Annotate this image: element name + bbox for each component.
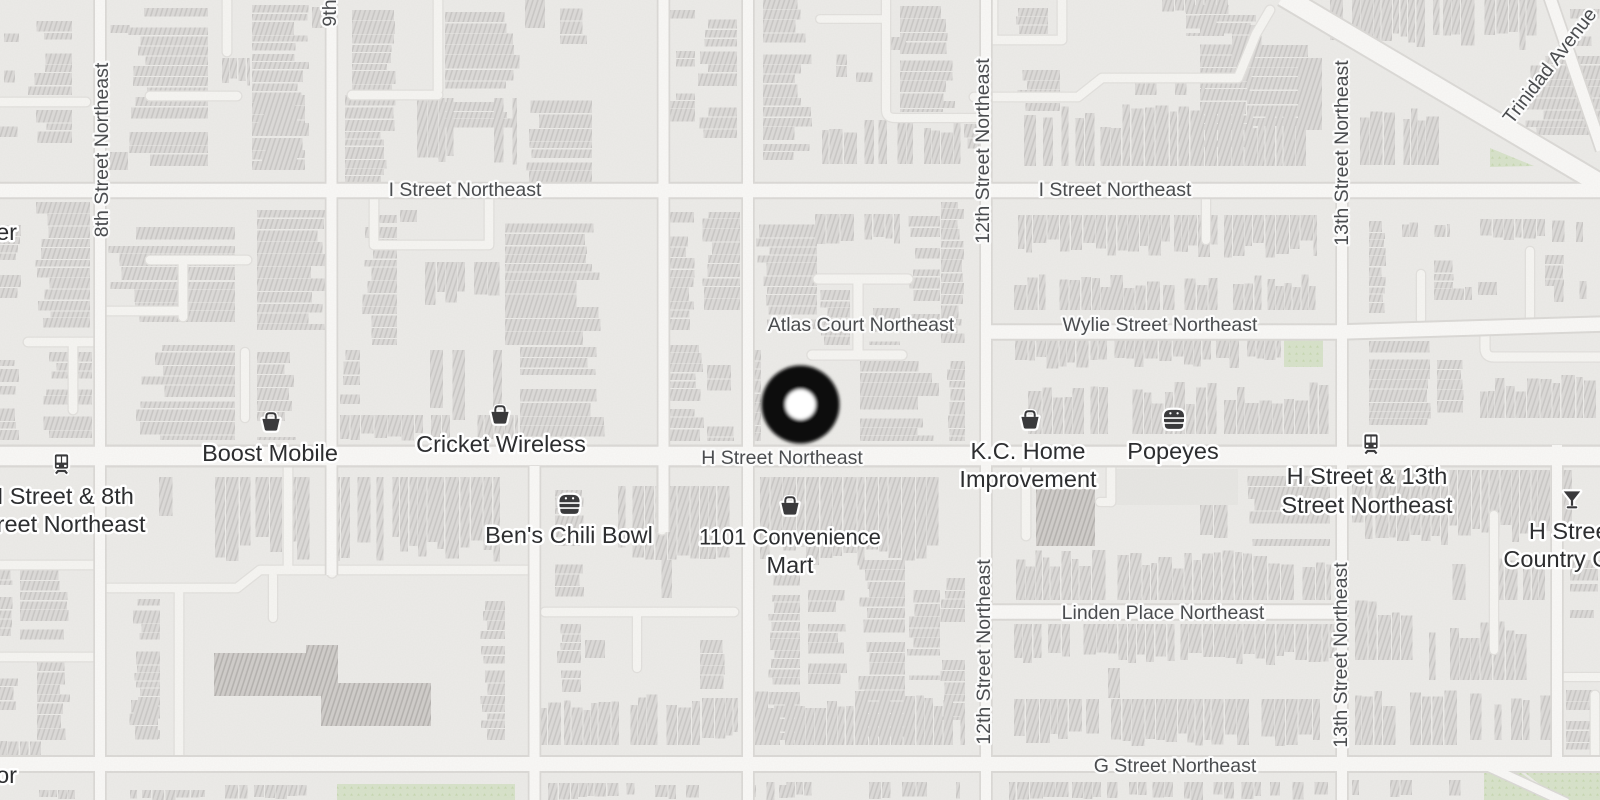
svg-text:Country Club: Country Club [1503, 546, 1600, 572]
svg-text:Mart: Mart [767, 552, 814, 578]
svg-text:Popeyes: Popeyes [1127, 438, 1218, 464]
svg-text:or: or [0, 762, 17, 788]
svg-text:Improvement: Improvement [959, 466, 1097, 492]
svg-text:Street Northeast: Street Northeast [0, 511, 146, 537]
svg-text:er: er [0, 219, 17, 245]
svg-text:H Street: H Street [1529, 518, 1600, 544]
svg-text:K.C. Home: K.C. Home [971, 438, 1086, 464]
svg-text:H Street & 8th: H Street & 8th [0, 483, 134, 509]
svg-text:1101 Convenience: 1101 Convenience [699, 525, 881, 550]
svg-text:Cricket Wireless: Cricket Wireless [416, 431, 586, 457]
svg-text:Street Northeast: Street Northeast [1281, 492, 1453, 518]
svg-text:Ben's Chili Bowl: Ben's Chili Bowl [485, 522, 653, 548]
svg-text:Boost Mobile: Boost Mobile [202, 440, 338, 466]
svg-text:H Street & 13th: H Street & 13th [1287, 463, 1448, 489]
